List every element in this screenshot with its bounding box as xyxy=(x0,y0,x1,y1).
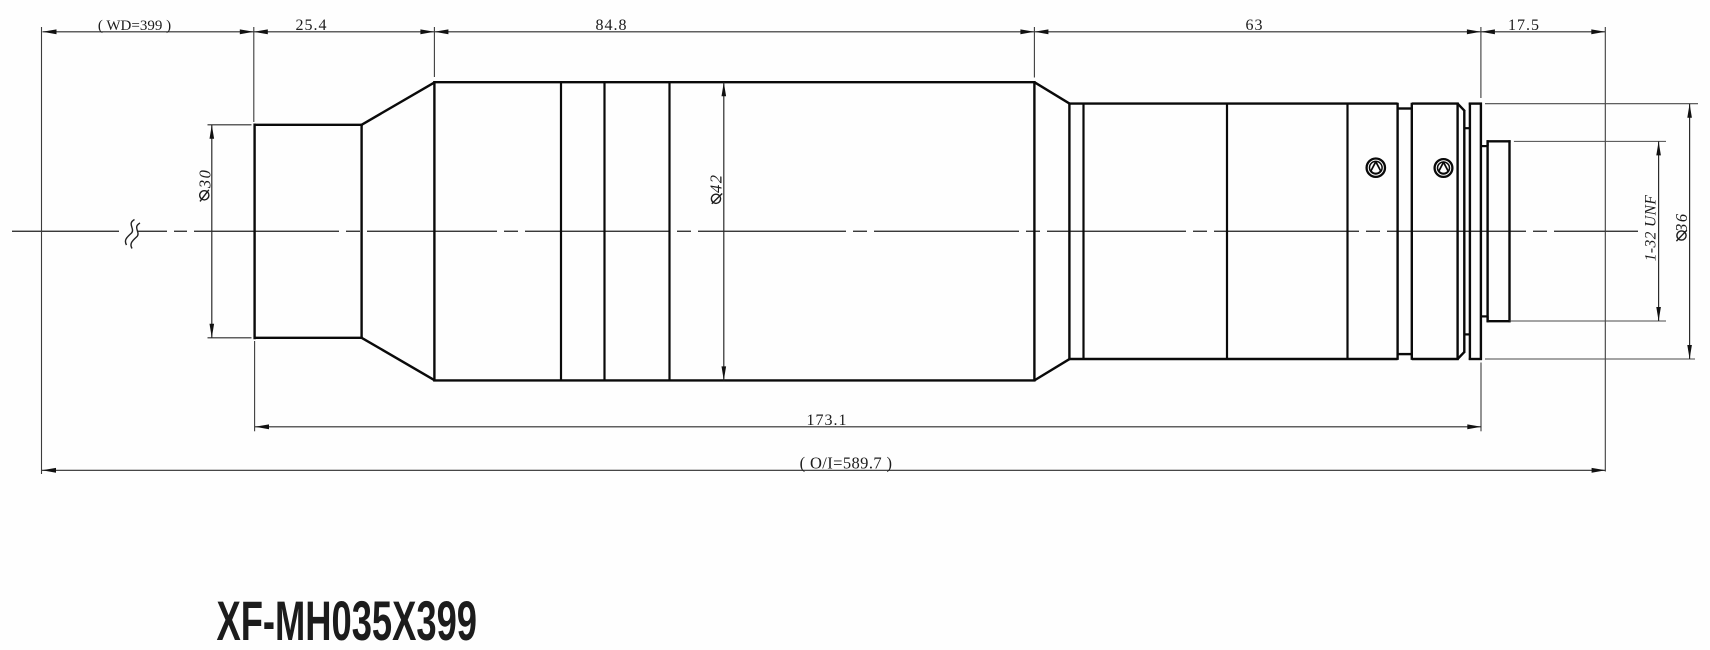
svg-text:63: 63 xyxy=(1246,17,1264,34)
svg-text:17.5: 17.5 xyxy=(1508,17,1540,34)
svg-text:30: 30 xyxy=(196,169,215,190)
svg-text:XF-MH035X399: XF-MH035X399 xyxy=(217,590,477,650)
svg-text:84.8: 84.8 xyxy=(596,17,628,34)
svg-text:36: 36 xyxy=(1672,212,1691,233)
svg-text:1-32 UNF: 1-32 UNF xyxy=(1643,195,1660,262)
svg-text:( WD=399 ): ( WD=399 ) xyxy=(98,18,171,34)
svg-text:173.1: 173.1 xyxy=(807,412,848,429)
svg-text:25.4: 25.4 xyxy=(296,17,328,34)
svg-text:( O/I=589.7 ): ( O/I=589.7 ) xyxy=(800,454,893,473)
svg-text:42: 42 xyxy=(707,174,726,194)
